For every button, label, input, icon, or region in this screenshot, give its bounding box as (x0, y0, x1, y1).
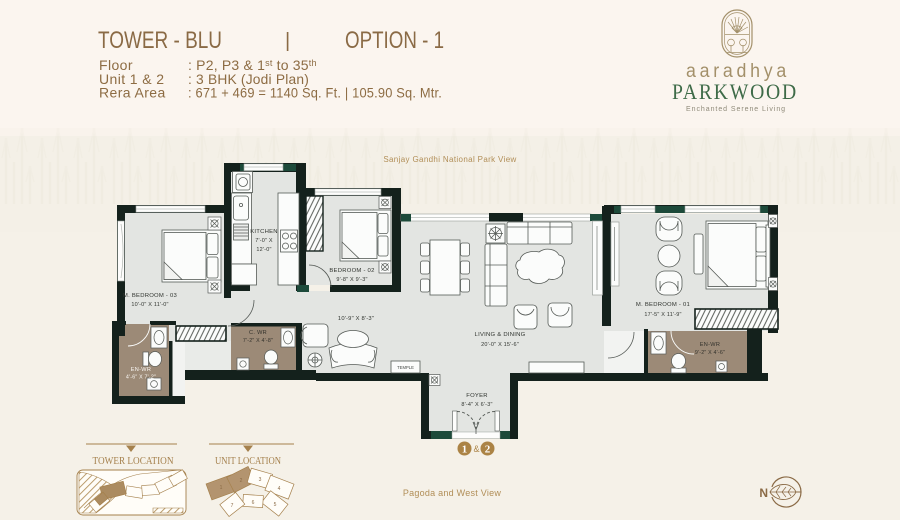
svg-text:PARKWOOD: PARKWOOD (672, 79, 798, 104)
svg-text:OPTION - 1: OPTION - 1 (345, 27, 444, 54)
svg-text:20'-0" X 15'-6": 20'-0" X 15'-6" (481, 342, 519, 348)
svg-text:7'-2" X 4'-8": 7'-2" X 4'-8" (243, 338, 273, 344)
svg-text:M. BEDROOM - 01: M. BEDROOM - 01 (636, 302, 690, 308)
svg-text:TOWER LOCATION: TOWER LOCATION (93, 456, 174, 467)
svg-text:LIVING & DINING: LIVING & DINING (475, 332, 526, 338)
svg-text:7: 7 (231, 503, 234, 509)
svg-text:Rera Area: Rera Area (99, 85, 166, 101)
svg-text:: 671 + 469 = 1140 Sq. Ft. | 1: : 671 + 469 = 1140 Sq. Ft. | 105.90 Sq. … (188, 85, 442, 101)
svg-text:M. BEDROOM - 03: M. BEDROOM - 03 (123, 293, 178, 299)
svg-text:1: 1 (220, 485, 223, 491)
svg-text:2: 2 (485, 444, 491, 456)
svg-text:6: 6 (252, 500, 255, 506)
svg-text:9'-2" X 4'-6": 9'-2" X 4'-6" (695, 350, 725, 356)
svg-text:EN-WR: EN-WR (700, 342, 720, 348)
svg-text:4: 4 (278, 486, 281, 492)
svg-text:7'-0" X: 7'-0" X (255, 238, 273, 244)
svg-text:1: 1 (462, 444, 468, 456)
svg-text:4'-6" X 7'-2": 4'-6" X 7'-2" (126, 375, 156, 381)
svg-text:UNIT LOCATION: UNIT LOCATION (215, 456, 281, 467)
svg-text:Pagoda and West View: Pagoda and West View (403, 488, 501, 498)
svg-text:5: 5 (274, 502, 277, 508)
svg-text:9'-8" X 9'-3": 9'-8" X 9'-3" (336, 277, 367, 283)
svg-text:FOYER: FOYER (466, 393, 488, 399)
svg-text:10'-9" X 8'-3": 10'-9" X 8'-3" (338, 316, 374, 322)
svg-text:EN-WR: EN-WR (131, 367, 151, 373)
svg-text:Sanjay Gandhi National Park Vi: Sanjay Gandhi National Park View (383, 155, 516, 164)
svg-text:C. WR: C. WR (249, 330, 267, 336)
svg-text:2: 2 (240, 478, 243, 484)
svg-text:8'-4" X 6'-3": 8'-4" X 6'-3" (461, 402, 492, 408)
svg-text:N: N (759, 486, 768, 500)
svg-text:BEDROOM - 02: BEDROOM - 02 (329, 268, 374, 274)
svg-text:17'-5" X 11'-9": 17'-5" X 11'-9" (644, 312, 681, 318)
svg-text:12'-0": 12'-0" (256, 247, 271, 253)
svg-text:TEMPLE: TEMPLE (397, 365, 414, 370)
svg-text:|: | (285, 30, 290, 52)
svg-text:10'-0" X 11'-0": 10'-0" X 11'-0" (131, 302, 168, 308)
svg-text:3: 3 (259, 477, 262, 483)
svg-text:Enchanted Serene Living: Enchanted Serene Living (686, 104, 786, 113)
svg-text:&: & (473, 444, 479, 454)
svg-text:TOWER - BLU: TOWER - BLU (98, 27, 222, 54)
svg-text:KITCHEN: KITCHEN (250, 229, 278, 235)
